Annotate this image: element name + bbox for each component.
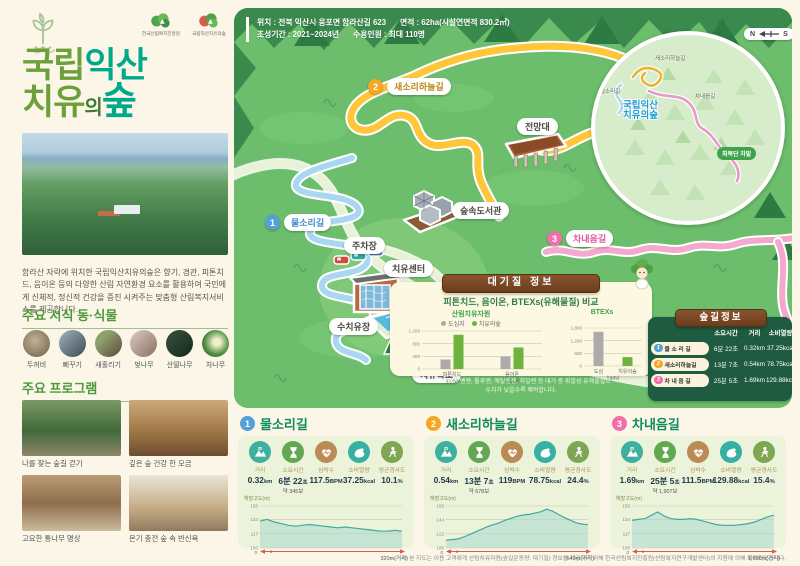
svg-text:117: 117 [251, 531, 259, 536]
trail-map: 위치 : 전북 익산시 웅포면 함라산길 623면적 : 62ha(시설연면적 … [234, 8, 792, 408]
stat-slope: 평균경사도15.4% [748, 441, 780, 493]
stats-row: 거리0.54km 소요시간13분 7초약 678보 심박수119BPM 소비열량… [430, 441, 594, 493]
trail-label: 새소리하늘길 [387, 78, 451, 95]
svg-text:150: 150 [250, 504, 258, 509]
program-item: 온기 충전 숲 속 반신욕 [129, 475, 228, 544]
stat-distance: 거리0.32km [244, 441, 276, 493]
hourglass-icon [468, 441, 490, 463]
svg-text:1,800: 1,800 [571, 326, 583, 331]
info-period: 조성기간 : 2021~2024년 [257, 30, 339, 39]
org-logo-kofwi: 한국산림복지진흥원 [140, 12, 182, 37]
trail-card-water-sound: 거리0.32km 소요시간6분 22초약 345보 심박수117.5BPM 소비… [238, 436, 414, 548]
svg-text:음이온: 음이온 [505, 371, 519, 378]
elevation-axis-label: 해발고도(m) [616, 495, 780, 502]
compass-arrow-icon [758, 30, 780, 38]
svg-text:165: 165 [436, 504, 444, 509]
tea-field-badge: 최북단 차밭 [717, 147, 756, 160]
cherry-tree-photo [130, 330, 157, 357]
toad-photo [23, 330, 50, 357]
info-area: 면적 : 62ha(시설연면적 830.2㎡) [400, 18, 510, 27]
org-logos: 한국산림복지진흥원 국립익산치유의숲 [140, 12, 230, 37]
species-section-heading: 주요 서식 동·식물 [22, 305, 228, 329]
muscle-arm-icon [720, 441, 742, 463]
air-quality-ribbon: 대기질 정보 [442, 274, 600, 293]
heart-icon [315, 441, 337, 463]
card-title-tea-scent: 3차내음길 [612, 414, 680, 433]
svg-text:600: 600 [574, 351, 582, 356]
trail-number-badge: 1 [265, 215, 280, 230]
species-label: 차나무 [206, 360, 225, 370]
title-part: 익산 [84, 46, 146, 85]
org-logo-label: 한국산림복지진흥원 [142, 31, 180, 37]
elevation-axis-label: 해발고도(m) [244, 495, 408, 502]
species-label: 두꺼비 [27, 360, 46, 370]
aerial-forest-photo [22, 133, 228, 255]
dogwood-photo [166, 330, 193, 357]
healing-center-label: 치유센터 [384, 260, 433, 277]
healing-forest-map-poster: 한국산림복지진흥원 국립익산치유의숲 국립익산 치유의숲 함라산 자락에 위치한… [0, 0, 800, 566]
species-item: 새홀리기 [92, 330, 125, 370]
distance-icon [435, 441, 457, 463]
species-label: 벚나무 [134, 360, 153, 370]
elevation-axis-label: 해발고도(m) [430, 495, 594, 502]
species-item: 차나무 [199, 330, 232, 370]
org-logo-forest: 국립익산치유의숲 [188, 12, 230, 37]
trail-marker-tea-scent: 3 차내음길 [547, 230, 613, 247]
svg-text:117: 117 [623, 531, 631, 536]
stat-slope: 평균경사도24.4% [562, 441, 594, 493]
inset-trail1-label: 물소리길 [600, 87, 620, 95]
sidebar: 한국산림복지진흥원 국립익산치유의숲 국립익산 치유의숲 함라산 자락에 위치한… [0, 0, 232, 566]
species-item: 뻐꾸기 [56, 330, 89, 370]
tea-tree-photo [202, 330, 229, 357]
program-photo-bath [129, 475, 228, 531]
programs-section-heading: 주요 프로그램 [22, 378, 228, 402]
species-label: 뻐꾸기 [63, 360, 82, 370]
title-part: 숲 [102, 81, 136, 123]
program-photo-walk [22, 400, 121, 456]
svg-text:도심: 도심 [594, 368, 603, 375]
page-title: 국립익산 치유의숲 [22, 48, 147, 121]
stat-calories: 소비열량37.25kcal [343, 441, 375, 493]
svg-text:1,200: 1,200 [571, 338, 583, 343]
production-footnote: ※ 본 지도는 이용 고객에게 산림치유자원(숲길운동량, 대기질) 정보를 제… [402, 553, 786, 562]
inset-trail2-label: 새소리하늘길 [655, 54, 685, 62]
water-healing-label: 수치유장 [329, 318, 378, 335]
svg-text:122: 122 [436, 531, 444, 536]
program-item: 나를 찾는 숲길 걷기 [22, 400, 121, 469]
air-quality-panel: 대기질 정보 피톤치드, 음이온, BTEXs(유해물질) 비교 산림치유자원 … [390, 282, 652, 376]
inset-forest-name: 국립익산치유의숲 [623, 101, 658, 122]
svg-text:150: 150 [622, 504, 630, 509]
elevation-profile: 해발고도(m) 1001171341500 320m(거리) [244, 495, 408, 563]
compass-south-label: S [783, 31, 788, 38]
species-item: 두꺼비 [20, 330, 53, 370]
stats-row: 거리0.32km 소요시간6분 22초약 345보 심박수117.5BPM 소비… [244, 441, 408, 493]
stats-row: 거리1.69km 소요시간25분 5초약 1,907보 심박수111.5BPM … [616, 441, 780, 493]
trail-number-badge: 3 [547, 231, 562, 246]
inset-trail3-label: 차내음길 [695, 92, 715, 100]
trail-table-ribbon: 숲길정보 [675, 309, 767, 327]
chart-legend: 도심지 치유의숲 [441, 319, 501, 327]
svg-text:0: 0 [254, 550, 257, 555]
svg-text:134: 134 [622, 517, 630, 522]
svg-text:치유의숲: 치유의숲 [618, 368, 637, 375]
col-calories: 소비열량 [766, 328, 792, 337]
program-caption: 깊은 숲 건강 한 모금 [129, 458, 228, 469]
cuckoo-photo [59, 330, 86, 357]
svg-text:800: 800 [412, 341, 420, 346]
species-item: 산딸나무 [163, 330, 196, 370]
table-row: 1물 소 리 길 6분 22초0.32km37.25kcal [648, 340, 792, 356]
title-part: 의 [84, 97, 101, 119]
trail-marker-water-sound: 1 물소리길 [265, 214, 331, 231]
svg-text:400: 400 [412, 354, 420, 359]
hiker-icon [381, 441, 403, 463]
program-photo-tea [129, 400, 228, 456]
trail-card-tea-scent: 거리1.69km 소요시간25분 5초약 1,907보 심박수111.5BPM … [610, 436, 786, 548]
trail-number-badge: 2 [368, 79, 383, 94]
program-caption: 나를 찾는 숲길 걷기 [22, 458, 121, 469]
svg-text:0: 0 [417, 367, 420, 372]
stat-heart-rate: 심박수111.5BPM [682, 441, 714, 493]
hourglass-icon [654, 441, 676, 463]
trail-marker-bird-sky: 2 새소리하늘길 [368, 78, 451, 95]
hiker-icon [567, 441, 589, 463]
card-title-bird-sky: 2새소리하늘길 [426, 414, 518, 433]
info-capacity: 수용인원 : 최대 110명 [353, 30, 425, 39]
red-green-cloud-logo-icon [196, 12, 222, 30]
stat-slope: 평균경사도10.1% [376, 441, 408, 493]
title-part: 치유 [22, 83, 84, 122]
trail-label: 차내음길 [566, 230, 613, 247]
col-distance: 거리 [743, 328, 766, 337]
species-label: 새홀리기 [95, 360, 121, 370]
svg-text:0: 0 [579, 364, 582, 369]
tree-mascot-icon [628, 258, 656, 290]
program-caption: 고요한 통나무 명상 [22, 533, 121, 544]
hiker-icon [753, 441, 775, 463]
program-item: 깊은 숲 건강 한 모금 [129, 400, 228, 469]
hourglass-icon [282, 441, 304, 463]
stat-distance: 거리1.69km [616, 441, 648, 493]
species-row: 두꺼비 뻐꾸기 새홀리기 벚나무 산딸나무 차나무 [20, 330, 232, 370]
heart-icon [501, 441, 523, 463]
species-label: 산딸나무 [167, 360, 193, 370]
table-row: 2새소리하늘길 13분 7초0.54km78.75kcal [648, 356, 792, 372]
title-part: 국립 [22, 46, 84, 85]
site-info: 위치 : 전북 익산시 웅포면 함라산길 623면적 : 62ha(시설연면적 … [246, 17, 524, 42]
trail-info-table: 숲길정보 소요시간 거리 소비열량 1물 소 리 길 6분 22초0.32km3… [648, 317, 792, 401]
program-caption: 온기 충전 숲 속 반신욕 [129, 533, 228, 544]
trail-label: 물소리길 [284, 214, 331, 231]
stat-time: 소요시간6분 22초약 345보 [277, 441, 309, 493]
inset-terrain [595, 35, 781, 221]
card-title-water-sound: 1물소리길 [240, 414, 308, 433]
stat-time: 소요시간13분 7초약 678보 [463, 441, 495, 493]
heart-icon [687, 441, 709, 463]
hobby-falcon-photo [95, 330, 122, 357]
muscle-arm-icon [534, 441, 556, 463]
stat-calories: 소비열량78.75kcal [529, 441, 561, 493]
library-label: 숲속도서관 [452, 202, 509, 219]
muscle-arm-icon [348, 441, 370, 463]
org-logo-label: 국립익산치유의숲 [192, 31, 226, 37]
air-quality-subtitle: 피톤치드, 음이온, BTEXs(유해물질) 비교 [390, 295, 652, 308]
compass: N S [744, 28, 792, 40]
distance-icon [621, 441, 643, 463]
overview-inset-map: 새소리하늘길 물소리길 국립익산치유의숲 차내음길 최북단 차밭 [591, 31, 785, 225]
btexs-footnote: ※BTEXs : 벤젠, 톨루엔, 에틸벤젠, 자일렌 등 대기 중 휘발성 유… [390, 378, 652, 396]
stat-heart-rate: 심박수117.5BPM [310, 441, 342, 493]
col-time: 소요시간 [709, 328, 743, 337]
parking-label: 주차장 [344, 237, 385, 254]
stat-distance: 거리0.54km [430, 441, 462, 493]
table-row: 3차 내 음 길 25분 5초1.69km129.88kcal [648, 372, 792, 388]
stat-time: 소요시간25분 5초약 1,907보 [649, 441, 681, 493]
chart-title: 산림치유자원 [452, 309, 491, 319]
stat-calories: 소비열량129.88kcal [715, 441, 747, 493]
species-item: 벚나무 [127, 330, 160, 370]
programs-grid: 나를 찾는 숲길 걷기 깊은 숲 건강 한 모금 고요한 통나무 명상 온기 충… [22, 400, 228, 544]
info-location: 위치 : 전북 익산시 웅포면 함라산길 623 [257, 18, 386, 27]
svg-text:피톤치드: 피톤치드 [443, 371, 462, 378]
observatory-label: 전망대 [517, 118, 558, 135]
stat-heart-rate: 심박수119BPM [496, 441, 528, 493]
svg-text:134: 134 [250, 517, 258, 522]
green-cloud-logo-icon [148, 12, 174, 30]
trail-card-bird-sky: 거리0.54km 소요시간13분 7초약 678보 심박수119BPM 소비열량… [424, 436, 600, 548]
program-item: 고요한 통나무 명상 [22, 475, 121, 544]
distance-icon [249, 441, 271, 463]
compass-north-label: N [750, 31, 755, 38]
svg-text:1,200: 1,200 [409, 329, 421, 334]
program-photo-meditation [22, 475, 121, 531]
svg-text:144: 144 [436, 517, 444, 522]
chart-title: BTEXs [591, 309, 614, 316]
